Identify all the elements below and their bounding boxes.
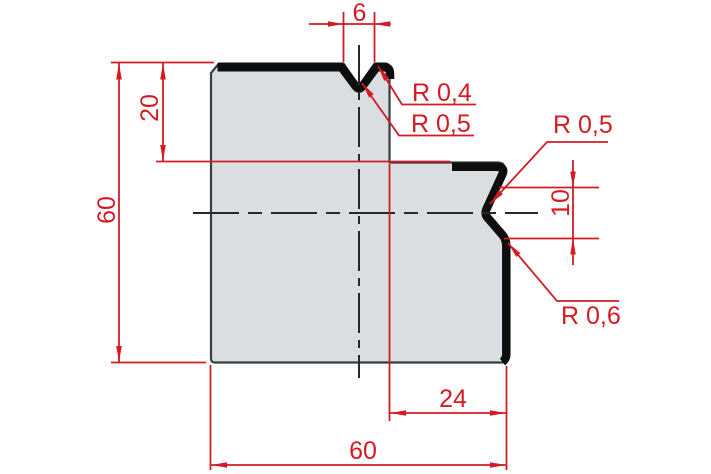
dim-value-10: 10: [547, 189, 575, 217]
dim-overall-width: 60: [211, 365, 507, 470]
dim-top-notch-width: 6: [309, 0, 391, 62]
dim-value-6: 6: [353, 0, 367, 27]
dim-arrow: [160, 145, 166, 161]
dim-arrow: [116, 346, 122, 362]
radius-value-r05-right: R 0,5: [553, 111, 613, 139]
dim-arrow: [570, 239, 576, 255]
radius-value-r04: R 0,4: [412, 79, 472, 107]
radius-value-r05-top: R 0,5: [411, 110, 471, 138]
radius-label-right-lower: R 0,6: [508, 243, 621, 330]
dim-arrow: [116, 64, 122, 80]
dim-arrow: [211, 462, 227, 468]
dim-arrow: [328, 21, 344, 27]
dim-arrow: [490, 410, 506, 416]
dim-value-60-bottom: 60: [349, 437, 377, 465]
dim-arrow: [490, 462, 506, 468]
die-profile-drawing: 6 20 60 10 24 6: [0, 0, 711, 474]
dim-value-20: 20: [136, 94, 164, 122]
drawing-canvas: 6 20 60 10 24 6: [0, 0, 711, 474]
dim-arrow: [390, 410, 406, 416]
dim-arrow: [375, 21, 391, 27]
dim-value-60-left: 60: [93, 196, 121, 224]
dim-arrow: [160, 64, 166, 80]
dim-value-24: 24: [439, 385, 467, 413]
radius-value-r06: R 0,6: [561, 302, 621, 330]
dim-arrow: [570, 172, 576, 188]
